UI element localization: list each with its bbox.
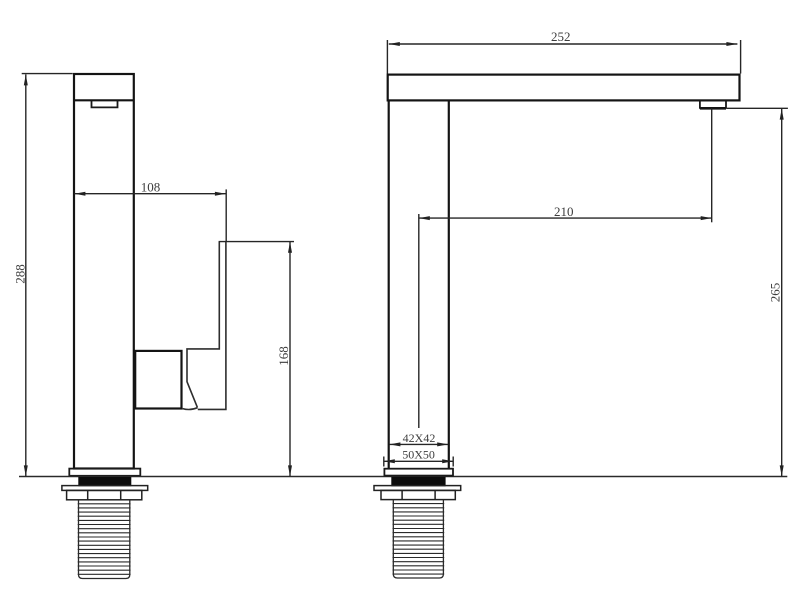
- svg-text:168: 168: [276, 346, 291, 366]
- svg-text:265: 265: [767, 283, 782, 303]
- svg-text:108: 108: [141, 179, 161, 194]
- svg-text:210: 210: [554, 204, 574, 219]
- svg-text:288: 288: [12, 264, 27, 284]
- svg-text:42X42: 42X42: [403, 431, 436, 445]
- svg-text:50X50: 50X50: [402, 447, 435, 461]
- svg-text:252: 252: [551, 29, 571, 44]
